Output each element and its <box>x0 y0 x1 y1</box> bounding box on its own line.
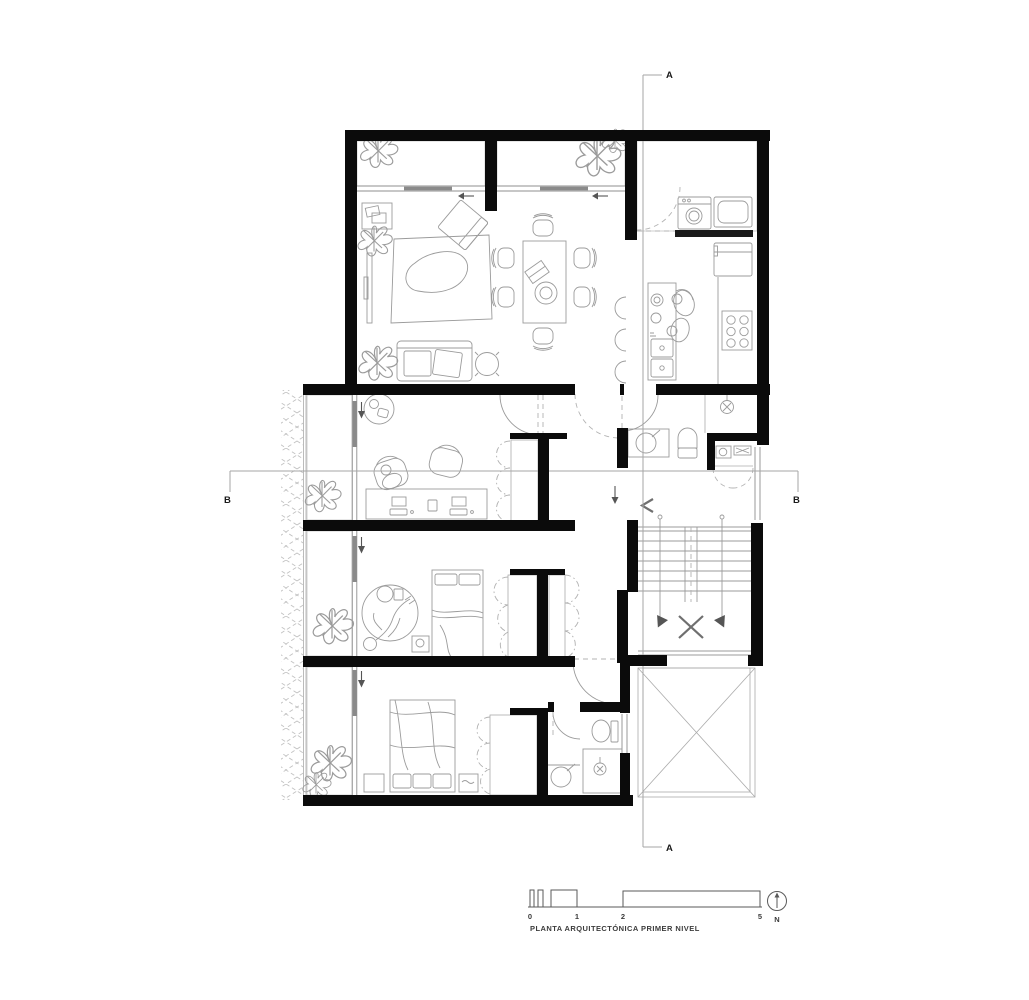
round-table-icon <box>364 394 394 424</box>
stove-icon <box>722 311 752 350</box>
stair-up-mark <box>679 616 703 638</box>
water-heater-closet <box>713 446 753 488</box>
scale-tick-0: 0 <box>528 912 532 921</box>
scale-tick-2: 2 <box>621 912 625 921</box>
tv-console-icon <box>362 203 392 323</box>
closet-door-swing <box>565 575 579 658</box>
laundry-sink-icon <box>714 197 752 227</box>
shower-icon <box>583 749 622 793</box>
plant-icon <box>311 746 351 781</box>
dining-area <box>492 214 597 351</box>
toilet-icon <box>592 720 618 742</box>
sliding-door-leaf <box>404 187 452 191</box>
door-swing <box>500 395 540 435</box>
service-patio-brick <box>637 141 757 231</box>
balcony-1-brick <box>307 395 352 520</box>
scale-tick-5: 5 <box>758 912 762 921</box>
closet-icon <box>511 440 538 522</box>
sofa-icon <box>397 341 472 381</box>
section-label-b-left: B <box>224 495 231 506</box>
bathroom-window <box>622 714 627 753</box>
chair-icon <box>574 287 596 307</box>
section-label-a-top: A <box>666 70 673 81</box>
scale-tick-1: 1 <box>575 912 579 921</box>
plant-icon <box>576 137 621 176</box>
desk-chair-icon <box>427 442 466 480</box>
chair-icon <box>574 248 596 268</box>
chair-icon <box>533 328 553 350</box>
sink-icon <box>548 764 580 787</box>
nightstand-icon <box>412 636 429 652</box>
door-swing <box>622 395 658 431</box>
plant-icon <box>313 609 353 644</box>
floor-plan-sheet: A A B B 0 1 2 5 N PLANTA ARQUITECTÓNICA … <box>0 0 1029 1000</box>
section-label-a-bottom: A <box>666 843 673 854</box>
closet-door-swing <box>494 577 508 657</box>
study-room <box>364 394 543 522</box>
door-swing <box>575 394 619 438</box>
sliding-door-leaf <box>540 187 588 191</box>
door-swing <box>573 661 616 704</box>
scale-bar: 0 1 2 5 <box>528 890 762 921</box>
sliding-door-leaf <box>353 670 357 716</box>
void-space <box>638 668 755 797</box>
nightstand-icon <box>364 774 384 792</box>
closet-icon <box>508 575 537 657</box>
north-label: N <box>774 915 779 924</box>
desk-icon <box>366 489 487 519</box>
bathroom-2 <box>548 712 622 793</box>
plant-icon <box>358 226 392 256</box>
terrace-brick-left <box>357 141 485 186</box>
chair-icon <box>533 214 553 236</box>
vanity-sink-icon <box>628 429 669 457</box>
section-label-b-right: B <box>793 495 800 506</box>
stair-window <box>755 447 760 520</box>
person-seated-icon <box>380 465 404 492</box>
direction-chevron <box>642 499 653 512</box>
balcony-2-brick <box>307 531 352 656</box>
chair-icon <box>492 248 514 268</box>
chair-icon <box>492 287 514 307</box>
nightstand-icon <box>459 774 478 792</box>
closet-door-swing <box>477 717 490 794</box>
section-line-a <box>643 75 662 847</box>
closet-icon <box>490 715 537 795</box>
drawing-title: PLANTA ARQUITECTÓNICA PRIMER NIVEL <box>530 924 700 933</box>
plant-icon <box>305 480 341 511</box>
sliding-door-leaf <box>353 536 357 582</box>
plant-icon <box>359 346 398 380</box>
sliding-door-leaf <box>353 401 357 447</box>
shower-head-icon <box>721 394 734 414</box>
bed-icon <box>432 570 483 658</box>
side-table-icon <box>475 352 499 376</box>
staircase <box>638 515 751 655</box>
washer-icon <box>678 197 711 229</box>
floor-plan-drawing: A A B B 0 1 2 5 N PLANTA ARQUITECTÓNICA … <box>0 0 1029 1000</box>
round-rug-icon <box>362 585 418 641</box>
bar-stool-icon <box>615 297 626 383</box>
person-lying-icon <box>364 596 416 651</box>
door-swing <box>553 712 580 739</box>
patio-counter <box>675 230 753 237</box>
hall-closet-icon <box>549 575 565 657</box>
refrigerator-icon <box>714 243 752 276</box>
closet-door-swing <box>497 441 511 522</box>
bedroom-2 <box>313 570 537 658</box>
toilet-icon <box>678 428 697 458</box>
north-indicator: N <box>768 892 787 925</box>
bed-icon <box>390 700 455 792</box>
armchair-icon <box>438 200 489 251</box>
lattice-screen <box>281 390 303 800</box>
